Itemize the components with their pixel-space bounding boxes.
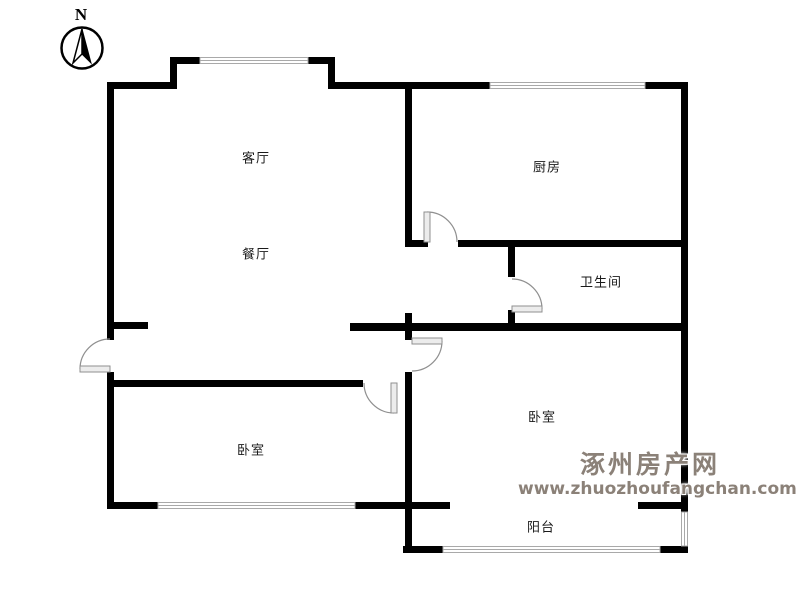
wall-bottom-left-a bbox=[107, 502, 158, 509]
wall-dining-stub-left bbox=[110, 322, 148, 329]
wall-left-lower bbox=[107, 372, 114, 509]
room-label-living-room: 客厅 bbox=[242, 148, 270, 167]
window-balcony-right bbox=[682, 512, 688, 546]
door-bathroom bbox=[512, 279, 542, 312]
floor-plan: N 客厅 餐厅 厨房 卫生间 卧室 卧室 阳台 涿州房产网 www.zhuozh… bbox=[0, 0, 800, 600]
watermark-site-name: 涿州房产网 bbox=[518, 451, 782, 479]
compass-north-label: N bbox=[75, 5, 88, 24]
room-label-bathroom: 卫生间 bbox=[580, 272, 622, 291]
door-kitchen bbox=[424, 212, 457, 242]
room-label-bedroom-left: 卧室 bbox=[237, 440, 265, 459]
window-bedroom-left bbox=[158, 503, 355, 509]
window-balcony-bottom bbox=[443, 547, 660, 553]
wall-bay-top-a bbox=[170, 57, 200, 64]
floor-plan-drawing: N bbox=[0, 0, 800, 600]
room-label-kitchen: 厨房 bbox=[533, 157, 561, 176]
wall-living-kitchen bbox=[405, 82, 412, 247]
wall-right bbox=[681, 82, 688, 512]
room-label-dining-room: 餐厅 bbox=[242, 244, 270, 263]
door-bedroom-left bbox=[364, 383, 397, 413]
wall-bathroom-left-a bbox=[508, 240, 515, 277]
wall-bedroom-balcony-b bbox=[638, 502, 688, 509]
watermark-site-url: www.zhuozhoufangchan.com bbox=[518, 480, 782, 499]
room-label-bedroom-right: 卧室 bbox=[528, 407, 556, 426]
wall-balcony-bottom-b bbox=[660, 546, 688, 553]
wall-bedroom-right-left bbox=[405, 372, 412, 553]
room-label-balcony: 阳台 bbox=[527, 517, 555, 536]
wall-bedroom-left-top bbox=[110, 380, 363, 387]
door-entry bbox=[80, 339, 110, 372]
north-compass-icon: N bbox=[62, 5, 103, 69]
wall-kitchen-bottom-b bbox=[458, 240, 688, 247]
watermark: 涿州房产网 www.zhuozhoufangchan.com bbox=[518, 451, 782, 498]
wall-main-horizontal bbox=[350, 323, 688, 331]
window-living-room bbox=[200, 58, 308, 64]
door-bedroom-right bbox=[412, 338, 442, 371]
wall-top-left bbox=[107, 82, 177, 89]
wall-left-upper bbox=[107, 82, 114, 340]
window-kitchen bbox=[490, 83, 645, 89]
